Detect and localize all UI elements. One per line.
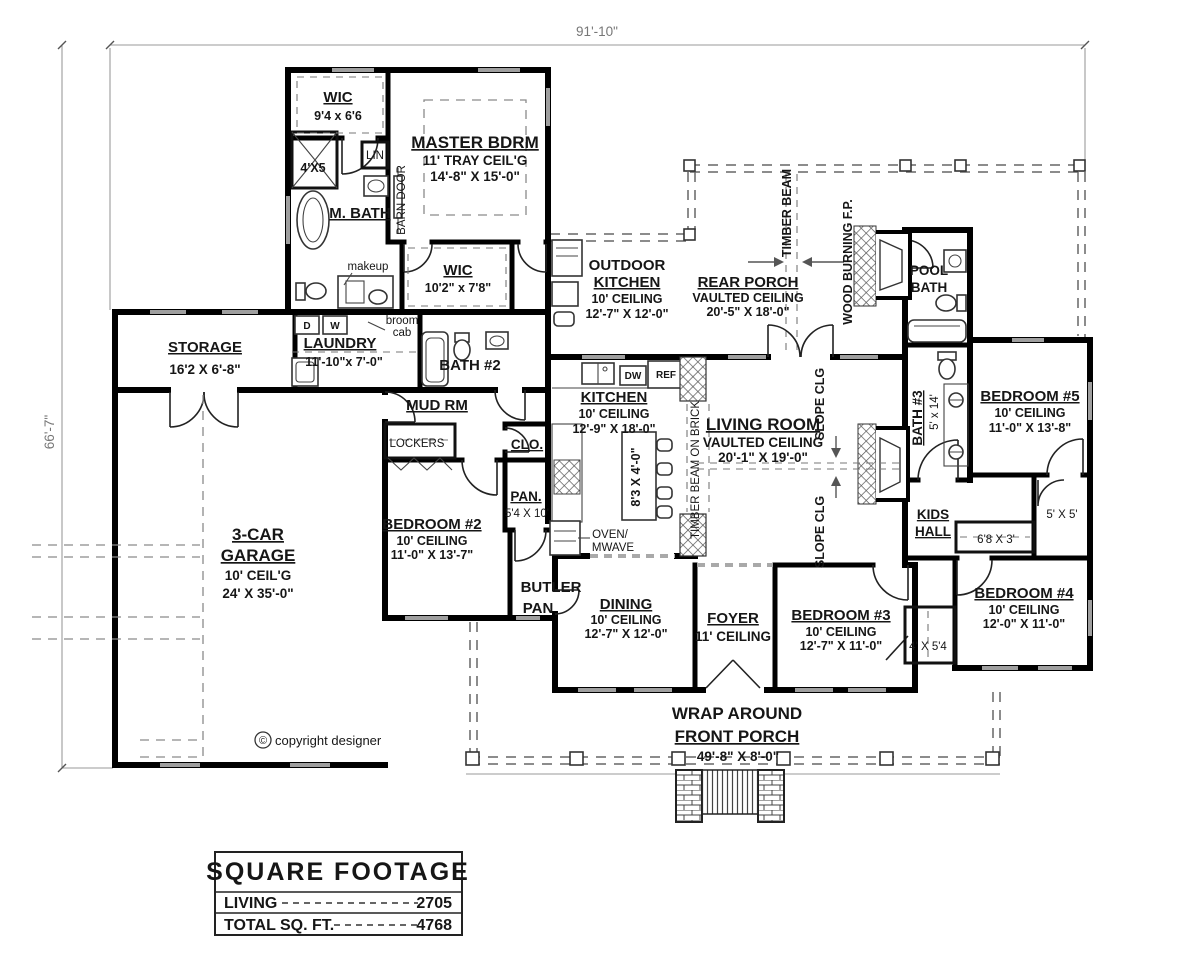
wic2-size: 10'2" x 7'8" <box>425 281 492 295</box>
table-row-living-label: LIVING <box>224 895 277 912</box>
dimension-top: 91'-10" <box>576 24 618 39</box>
garage-size: 24' X 35'-0" <box>222 586 293 601</box>
kitchen-size: 12'-9" X 18'-0" <box>572 422 655 436</box>
stool <box>657 439 672 451</box>
foyer-ceiling: 11' CEILING <box>695 629 771 644</box>
kids-hall-label2: HALL <box>915 524 951 539</box>
bedroom2-label: BEDROOM #2 <box>382 516 481 533</box>
storage-size: 16'2 X 6'-8" <box>169 362 240 377</box>
bedroom3-size: 12'-7" X 11'-0" <box>800 639 883 653</box>
wic2-label: WIC <box>443 262 472 279</box>
wic1-size: 9'4 x 6'6 <box>314 109 362 123</box>
dining-size: 12'-7" X 12'-0" <box>584 627 667 641</box>
timber-beam-brick-label: TIMBER BEAM ON BRICK <box>690 401 702 539</box>
wic1-label: WIC <box>323 89 352 106</box>
master-ceiling: 11' TRAY CEIL'G <box>423 153 528 168</box>
living-ceiling: VAULTED CEILING <box>703 435 823 450</box>
porch-post <box>570 752 583 765</box>
broom-cab-label1: broom <box>386 315 419 327</box>
porch-post <box>880 752 893 765</box>
rear-porch-size: 20'-5" X 18'-0" <box>706 305 789 319</box>
front-porch-label1: WRAP AROUND <box>672 704 802 723</box>
toilet <box>306 283 326 299</box>
cooktop <box>554 460 580 494</box>
wood-burning-fp-label: WOOD BURNING F.P. <box>841 199 855 324</box>
porch-post <box>466 752 479 765</box>
bedroom2-size: 11'-0" X 13'-7" <box>391 548 474 562</box>
copyright: © copyright designer <box>255 732 382 748</box>
stool <box>657 506 672 518</box>
dryer-label: D <box>303 321 310 332</box>
kitchen-label: KITCHEN <box>581 389 648 406</box>
washer-label: W <box>330 321 340 332</box>
toilet-tank <box>957 295 966 311</box>
garage-label2: GARAGE <box>221 546 296 565</box>
slope-clg-bottom: SLOPE CLG <box>813 496 827 568</box>
wall-oven <box>550 521 580 555</box>
tub <box>297 191 329 249</box>
bath3-size: 5' x 14' <box>929 394 941 430</box>
outdoor-kitchen-label1: OUTDOOR <box>589 257 666 274</box>
cabinet <box>552 282 578 306</box>
butler-label1: BUTLER <box>521 579 582 596</box>
bath3-label: BATH #3 <box>910 390 925 446</box>
front-porch-label2: FRONT PORCH <box>675 727 800 746</box>
oven-label1: OVEN/ <box>592 529 629 541</box>
front-porch-size: 49'-8" X 8'-0" <box>697 749 779 764</box>
outdoor-kitchen-size: 12'-7" X 12'-0" <box>585 307 668 321</box>
butler-label2: PAN <box>523 600 554 617</box>
bedroom5-label: BEDROOM #5 <box>980 388 1079 405</box>
table-title: SQUARE FOOTAGE <box>206 858 470 886</box>
copyright-text: copyright designer <box>275 733 382 748</box>
bedroom5-size: 11'-0" X 13'-8" <box>989 421 1072 435</box>
bath3-fixtures <box>938 352 968 466</box>
bedroom3-closet-size: 4' X 5'4 <box>909 641 947 653</box>
bath2-label: BATH #2 <box>439 357 500 374</box>
rear-porch-ceiling: VAULTED CEILING <box>692 291 803 305</box>
foyer-label: FOYER <box>707 610 759 627</box>
rear-porch-boundary <box>550 160 1085 350</box>
oven-label2: MWAVE <box>592 542 634 554</box>
bedroom5-ceiling: 10' CEILING <box>994 406 1065 420</box>
dimension-left: 66'-7" <box>42 415 57 450</box>
linen-label: LIN <box>366 150 384 162</box>
laundry-size: 11'-10"x 7'-0" <box>305 355 383 369</box>
mud-room-label: MUD RM <box>406 397 468 414</box>
table-row-living-value: 2705 <box>416 895 452 912</box>
porch-post <box>684 229 695 240</box>
porch-post <box>672 752 685 765</box>
front-steps <box>676 770 784 822</box>
living-fireplace <box>858 424 908 504</box>
rear-porch-label: REAR PORCH <box>698 274 799 291</box>
bedroom4-size: 12'-0" X 11'-0" <box>983 617 1066 631</box>
shower-size: 4'X5 <box>300 161 325 175</box>
timber-beam-label: TIMBER BEAM <box>780 169 794 257</box>
master-size: 14'-8" X 15'-0" <box>430 169 520 184</box>
master-bedroom-label: MASTER BDRM <box>411 133 539 152</box>
pantry-size: 5'4 X 10' <box>505 508 549 520</box>
grill <box>552 240 582 276</box>
stool <box>657 487 672 499</box>
closet-68-size: 6'8 X 3' <box>977 534 1015 546</box>
bedroom3-ceiling: 10' CEILING <box>805 625 876 639</box>
closet-55-size: 5' X 5' <box>1046 509 1077 521</box>
garage-label1: 3-CAR <box>232 525 284 544</box>
pool-bath-label2: BATH <box>911 280 948 295</box>
kids-hall-label1: KIDS <box>917 507 949 522</box>
ref-label: REF <box>656 370 676 381</box>
pool-bath-label1: POOL <box>910 263 948 278</box>
bedroom2-ceiling: 10' CEILING <box>396 534 467 548</box>
bedroom4-ceiling: 10' CEILING <box>988 603 1059 617</box>
pantry-label: PAN. <box>510 489 541 504</box>
floor-plan-sheet: 91'-10" 66'-7" <box>0 0 1200 962</box>
island-size: 8'3 X 4'-0" <box>629 447 643 506</box>
stool <box>657 463 672 475</box>
bedroom4-label: BEDROOM #4 <box>974 585 1074 602</box>
garage-ceiling: 10' CEIL'G <box>225 568 291 583</box>
outdoor-kitchen-label2: KITCHEN <box>594 274 661 291</box>
toilet-tank <box>296 283 305 300</box>
floor-plan-drawing: 91'-10" 66'-7" <box>0 0 1200 962</box>
porch-post <box>955 160 966 171</box>
kitchen-ceiling: 10' CEILING <box>578 407 649 421</box>
porch-post <box>986 752 999 765</box>
dining-label: DINING <box>600 596 653 613</box>
master-bath-label: M. BATH <box>329 205 390 222</box>
tub <box>908 320 966 342</box>
makeup-label: makeup <box>348 261 389 273</box>
porch-post <box>1074 160 1085 171</box>
barn-door-label: BARN DOOR <box>396 165 408 235</box>
copyright-symbol: © <box>259 735 267 747</box>
lockers-label: LOCKERS <box>390 438 445 450</box>
sink <box>369 290 387 304</box>
living-size: 20'-1" X 19'-0" <box>718 450 808 465</box>
outdoor-sink <box>554 312 574 326</box>
porch-post <box>900 160 911 171</box>
porch-post <box>684 160 695 171</box>
slope-clg-top: SLOPE CLG <box>813 368 827 440</box>
laundry-label: LAUNDRY <box>304 335 377 352</box>
toilet <box>936 295 956 311</box>
toilet <box>939 359 955 379</box>
outdoor-kitchen-fixtures <box>552 240 582 326</box>
dw-label: DW <box>625 371 642 382</box>
broom-cab-label2: cab <box>393 327 412 339</box>
porch-fireplace <box>854 226 910 306</box>
square-footage-table: SQUARE FOOTAGE LIVING 2705 TOTAL SQ. FT.… <box>206 852 470 935</box>
living-room-label: LIVING ROOM <box>706 415 820 434</box>
table-row-total-value: 4768 <box>416 917 452 934</box>
outdoor-kitchen-ceiling: 10' CEILING <box>591 292 662 306</box>
dining-ceiling: 10' CEILING <box>590 613 661 627</box>
bedroom3-label: BEDROOM #3 <box>791 607 890 624</box>
storage-label: STORAGE <box>168 339 242 356</box>
table-row-total-label: TOTAL SQ. FT. <box>224 917 334 934</box>
closet-label: CLO. <box>511 437 543 452</box>
